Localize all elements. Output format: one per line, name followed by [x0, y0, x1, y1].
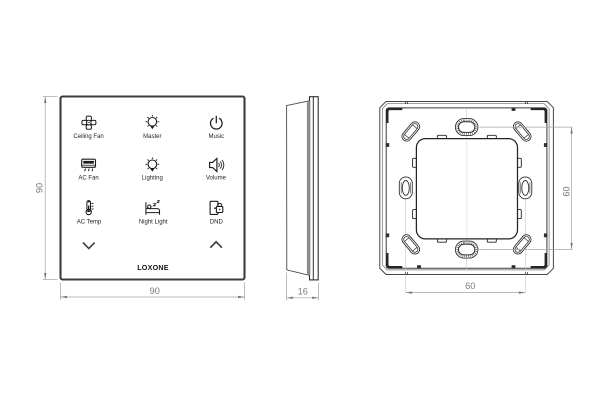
- svg-text:DND: DND: [210, 219, 224, 225]
- svg-text:LOXONE: LOXONE: [137, 263, 169, 272]
- svg-text:Volume: Volume: [206, 176, 227, 182]
- svg-text:90: 90: [35, 183, 45, 193]
- svg-text:16: 16: [298, 287, 308, 297]
- svg-text:AC Temp: AC Temp: [77, 219, 102, 225]
- svg-text:Night Light: Night Light: [139, 219, 168, 225]
- svg-text:60: 60: [561, 186, 571, 196]
- svg-text:AC Fan: AC Fan: [78, 176, 98, 182]
- svg-text:Lighting: Lighting: [142, 176, 163, 182]
- svg-text:60: 60: [465, 281, 475, 291]
- svg-text:Ceiling Fan: Ceiling Fan: [73, 134, 103, 140]
- svg-text:Master: Master: [143, 134, 161, 140]
- svg-text:90: 90: [150, 286, 160, 296]
- svg-text:Music: Music: [208, 134, 224, 140]
